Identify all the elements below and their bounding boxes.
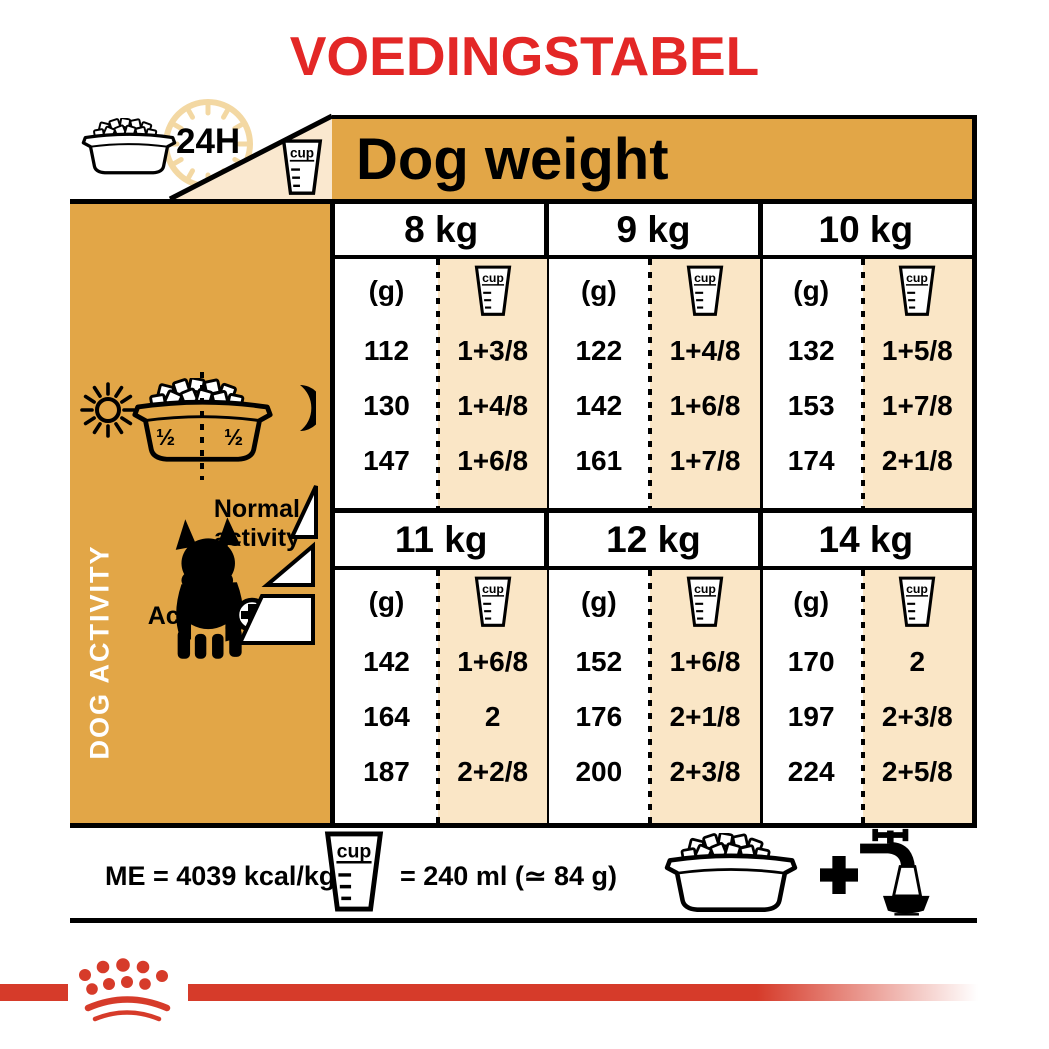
food-bowl-icon — [80, 118, 178, 178]
table-block-1: 8 kg (g) 112 130 147 1+3/8 1+4/8 1+6/8 — [335, 204, 972, 513]
brand-band-right — [188, 984, 978, 1001]
weight-column-12kg: 12 kg (g) 152 176 200 1+6/8 2+1/8 2+3/8 — [547, 513, 759, 823]
gram-value: 147 — [335, 433, 438, 488]
cup-value: 1+4/8 — [438, 378, 547, 433]
dog-activity-vertical-label: DOG ACTIVITY — [85, 480, 119, 825]
measuring-cup-icon — [686, 576, 724, 628]
cup-value: 2+3/8 — [863, 689, 972, 744]
brand-band-left — [0, 984, 68, 1001]
cup-value: 1+6/8 — [438, 634, 547, 689]
weight-header: 9 kg — [547, 204, 759, 259]
weight-column-10kg: 10 kg (g) 132 153 174 1+5/8 1+7/8 2+1/8 — [760, 204, 972, 508]
cup-value: 2+1/8 — [863, 433, 972, 488]
cup-value: 2 — [863, 634, 972, 689]
gram-value: 112 — [335, 323, 438, 378]
cup-value: 1+7/8 — [650, 433, 759, 488]
moon-icon — [276, 384, 316, 432]
weight-header: 12 kg — [547, 513, 759, 570]
gram-unit-label: (g) — [760, 570, 863, 634]
dog-activity-sidebar: DOG ACTIVITY ½ ½ Normal activity — [70, 204, 330, 828]
weight-column-8kg: 8 kg (g) 112 130 147 1+3/8 1+4/8 1+6/8 — [335, 204, 547, 508]
cup-value: 2 — [438, 689, 547, 744]
weight-header: 8 kg — [335, 204, 547, 259]
cup-value: 1+6/8 — [650, 378, 759, 433]
gram-value: 224 — [760, 744, 863, 799]
gram-value: 142 — [335, 634, 438, 689]
gram-value: 200 — [547, 744, 650, 799]
gram-value: 176 — [547, 689, 650, 744]
cup-value: 2+2/8 — [438, 744, 547, 799]
cup-value: 2+3/8 — [650, 744, 759, 799]
feeding-table-page: VOEDINGSTABEL 24H Dog weight DOG ACTIVIT… — [0, 0, 1049, 1049]
food-bowl-icon-large — [655, 833, 807, 917]
water-tap-icon — [850, 824, 938, 918]
cup-value: 2+1/8 — [650, 689, 759, 744]
table-block-2: 11 kg (g) 142 164 187 1+6/8 2 2+2/8 — [335, 513, 972, 823]
gram-unit-label: (g) — [335, 570, 438, 634]
weight-header: 10 kg — [760, 204, 972, 259]
gram-value: 122 — [547, 323, 650, 378]
cup-value: 1+3/8 — [438, 323, 547, 378]
half-portion-right: ½ — [224, 424, 243, 451]
cup-value: 1+7/8 — [863, 378, 972, 433]
measuring-cup-icon — [474, 576, 512, 628]
page-title: VOEDINGSTABEL — [0, 24, 1049, 88]
measuring-cup-icon — [474, 265, 512, 317]
cup-equals-label: = 240 ml (≃ 84 g) — [400, 861, 617, 892]
gram-unit-label: (g) — [547, 259, 650, 323]
gram-value: 130 — [335, 378, 438, 433]
cup-value: 1+5/8 — [863, 323, 972, 378]
weight-header: 14 kg — [760, 513, 972, 570]
bowl-split-dotted-line — [200, 372, 204, 480]
dog-weight-header: Dog weight — [332, 115, 977, 199]
measuring-cup-icon — [281, 139, 323, 196]
cup-value: 1+4/8 — [650, 323, 759, 378]
footer-divider-line — [70, 918, 977, 923]
royal-canin-crown-logo — [60, 953, 186, 1027]
measuring-cup-icon — [898, 576, 936, 628]
activity-steps-icon — [236, 482, 320, 652]
gram-unit-label: (g) — [335, 259, 438, 323]
measuring-cup-icon — [686, 265, 724, 317]
gram-unit-label: (g) — [547, 570, 650, 634]
weight-column-9kg: 9 kg (g) 122 142 161 1+4/8 1+6/8 1+7/8 — [547, 204, 759, 508]
sun-icon — [78, 380, 138, 440]
gram-value: 170 — [760, 634, 863, 689]
weight-column-14kg: 14 kg (g) 170 197 224 2 2+3/8 2+5/8 — [760, 513, 972, 823]
feeding-table: 8 kg (g) 112 130 147 1+3/8 1+4/8 1+6/8 — [330, 204, 977, 828]
gram-value: 152 — [547, 634, 650, 689]
half-half-bowl-icon: ½ ½ — [130, 372, 275, 484]
gram-value: 164 — [335, 689, 438, 744]
gram-value: 197 — [760, 689, 863, 744]
gram-value: 187 — [335, 744, 438, 799]
gram-unit-label: (g) — [760, 259, 863, 323]
cup-value: 2+5/8 — [863, 744, 972, 799]
half-portion-left: ½ — [156, 424, 175, 451]
gram-value: 132 — [760, 323, 863, 378]
cup-value: 1+6/8 — [650, 634, 759, 689]
weight-column-11kg: 11 kg (g) 142 164 187 1+6/8 2 2+2/8 — [335, 513, 547, 823]
gram-value: 161 — [547, 433, 650, 488]
activity-label: Activity — [120, 602, 238, 631]
gram-value: 153 — [760, 378, 863, 433]
dog-weight-label: Dog weight — [356, 126, 669, 193]
me-kcal-label: ME = 4039 kcal/kg — [105, 861, 335, 892]
weight-header: 11 kg — [335, 513, 547, 570]
gram-value: 142 — [547, 378, 650, 433]
measuring-cup-icon — [898, 265, 936, 317]
gram-value: 174 — [760, 433, 863, 488]
cup-value: 1+6/8 — [438, 433, 547, 488]
measuring-cup-icon-large — [315, 831, 393, 913]
